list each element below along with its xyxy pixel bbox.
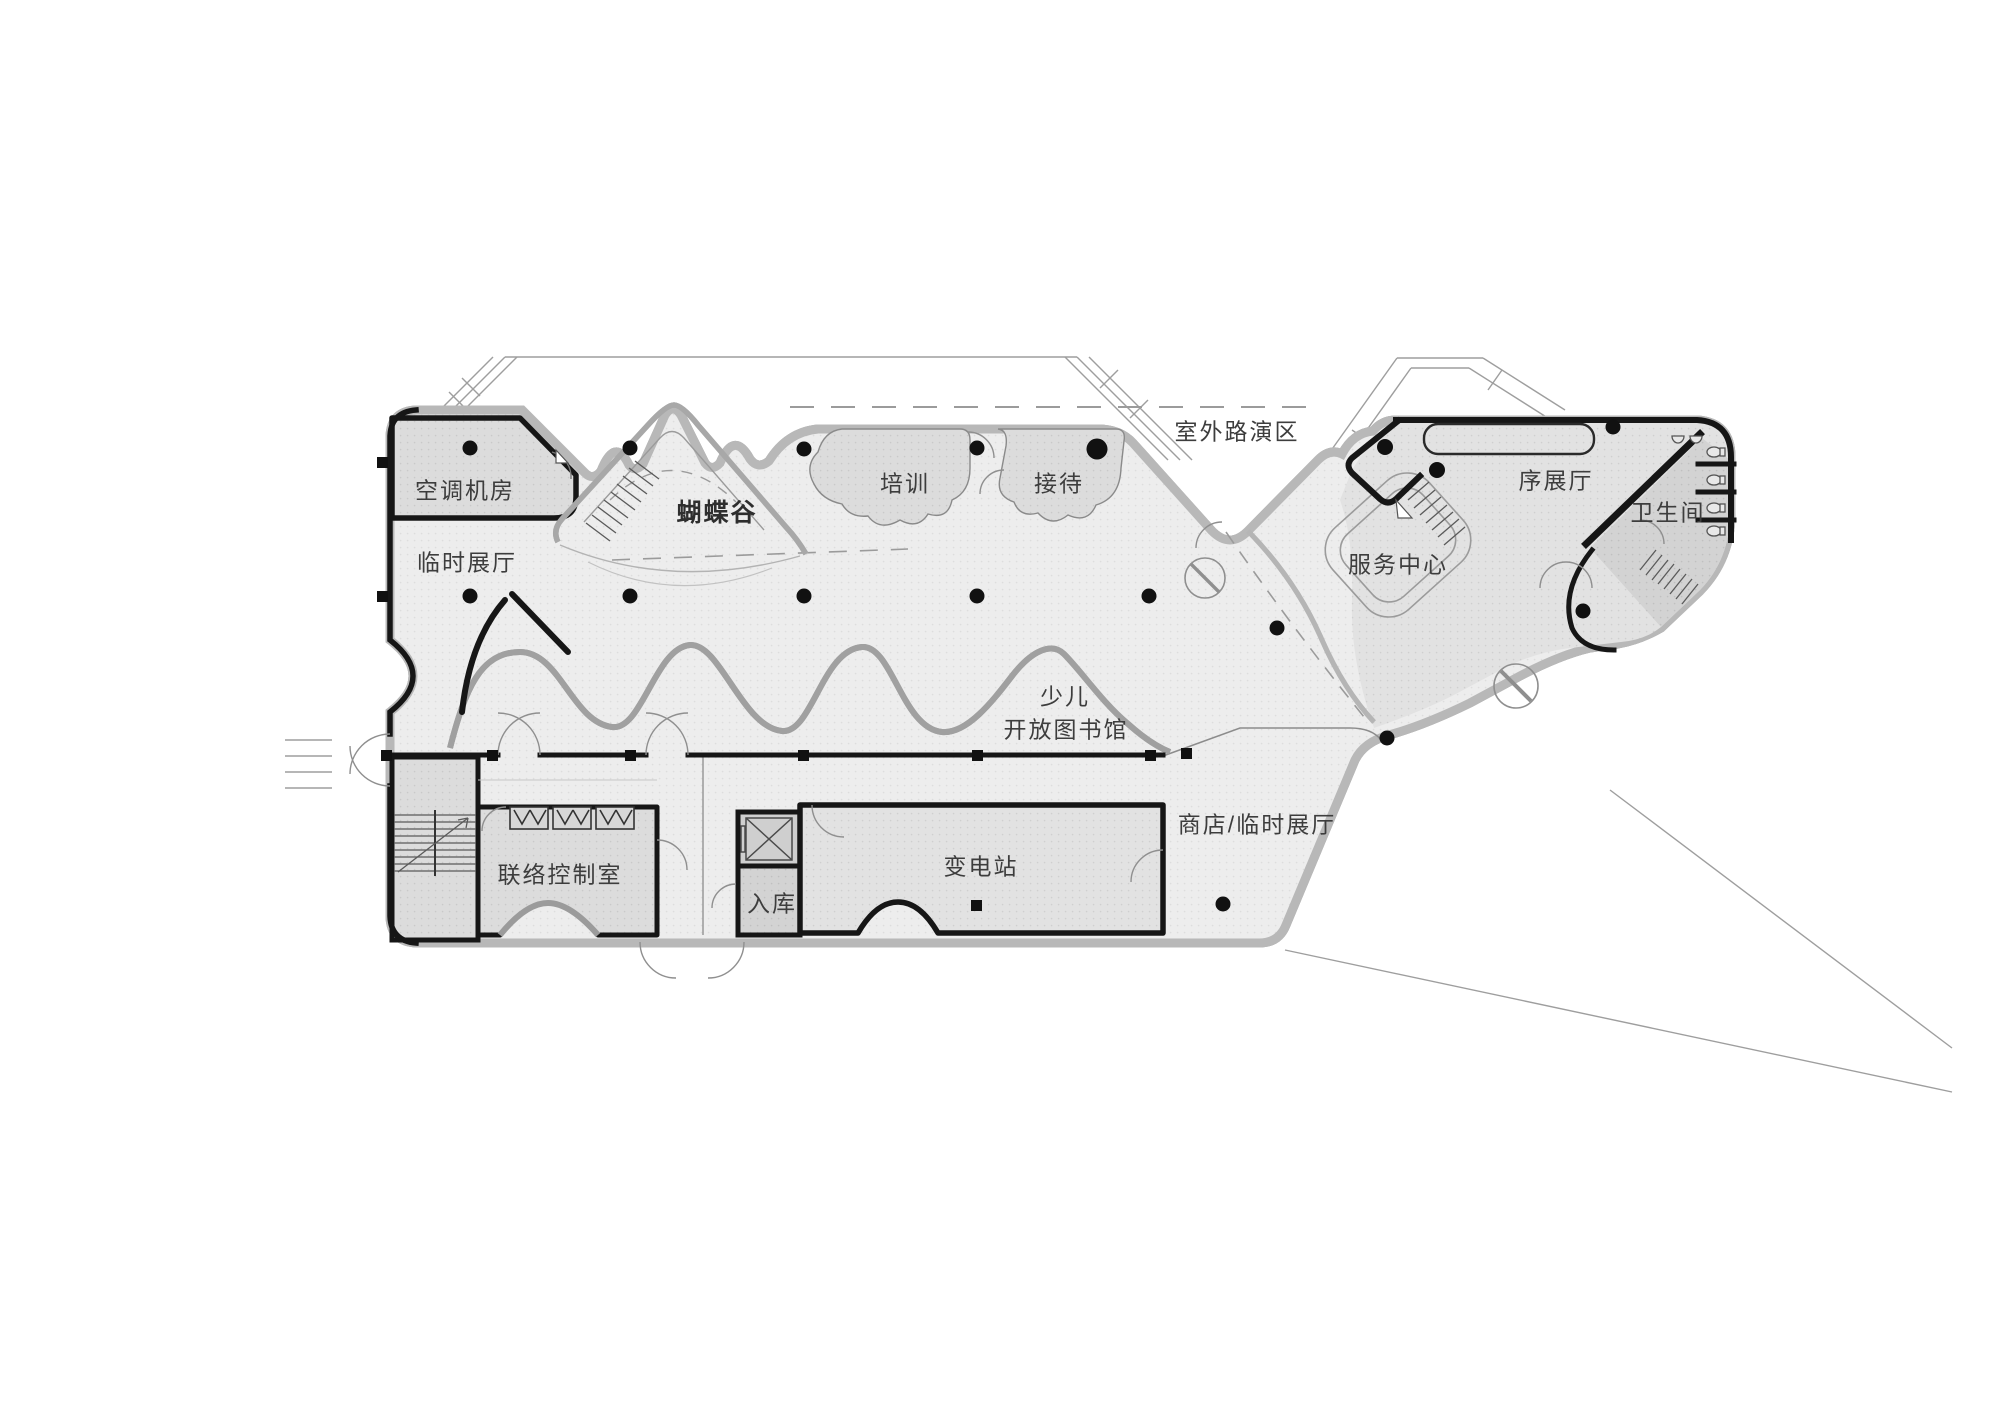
- room-label-storage-entry: 入库: [747, 884, 797, 918]
- room-label-shop-temp-exhibition: 商店/临时展厅: [1178, 805, 1336, 839]
- room-label-butterfly-valley: 蝴蝶谷: [676, 493, 757, 529]
- room-label-reception: 接待: [1034, 464, 1084, 498]
- room-label-liaison-control-room: 联络控制室: [498, 855, 623, 889]
- room-label-service-center: 服务中心: [1348, 545, 1448, 579]
- floor-plan: 空调机房 临时展厅 蝴蝶谷 培训 接待 室外路演区 序展厅 卫生间 服务中心 少…: [0, 0, 2000, 1413]
- area-label-outdoor-roadshow: 室外路演区: [1175, 412, 1300, 446]
- room-label-restroom: 卫生间: [1631, 493, 1706, 527]
- room-label-training: 培训: [880, 464, 930, 498]
- louver-bays: [510, 807, 634, 829]
- floor-plan-drawing: [0, 0, 2000, 1413]
- room-label-children-library-2: 开放图书馆: [1004, 710, 1129, 744]
- room-label-preface-hall: 序展厅: [1519, 461, 1594, 495]
- room-label-children-library-1: 少儿: [1040, 677, 1090, 711]
- room-label-substation: 变电站: [944, 847, 1019, 881]
- room-label-temporary-exhibition: 临时展厅: [417, 543, 517, 577]
- room-label-ac-machine-room: 空调机房: [415, 471, 515, 505]
